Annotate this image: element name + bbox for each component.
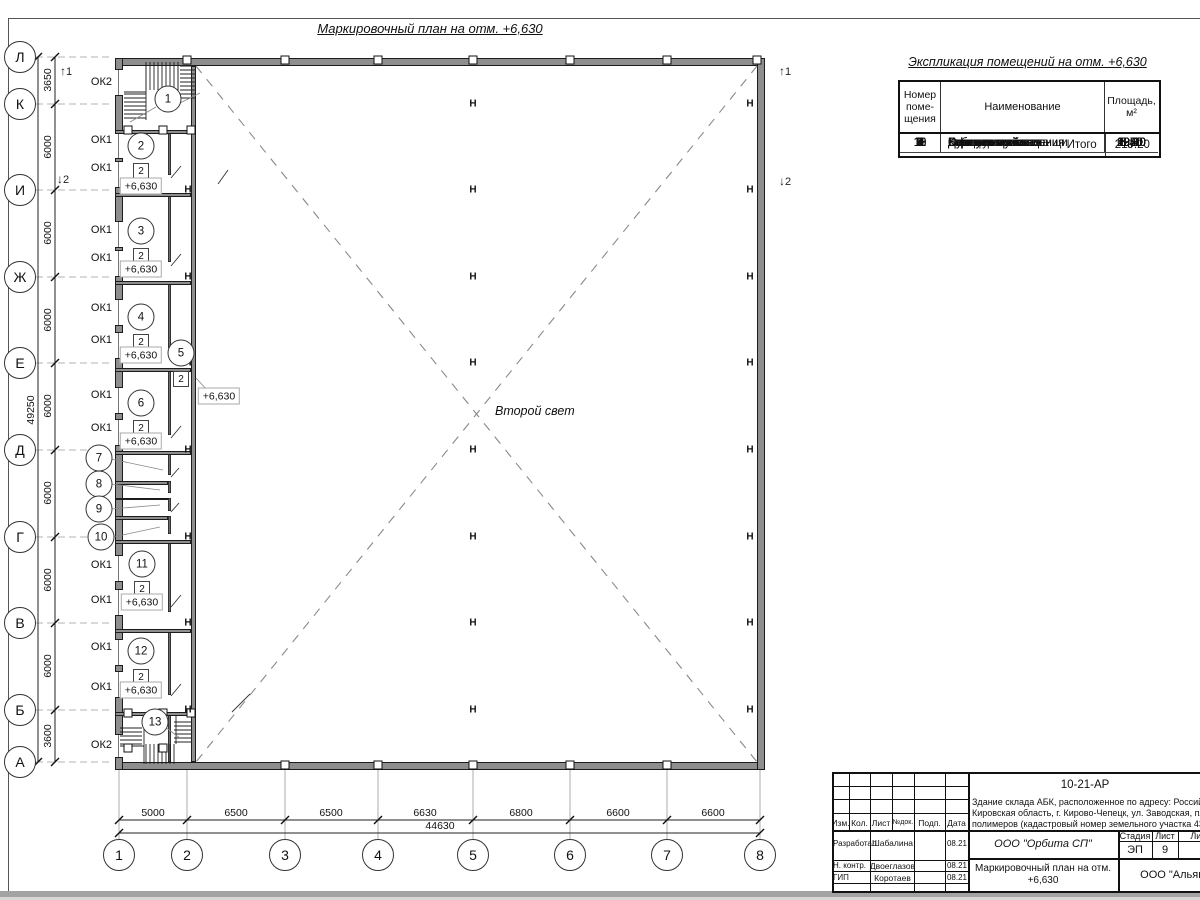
- row-axis-circle: Б: [4, 694, 36, 726]
- sig-date-cell: 08.21: [946, 872, 968, 883]
- dimension-label: 6000: [42, 308, 54, 331]
- rev-col-izm: Изм.: [832, 815, 849, 830]
- doc-title-cell: Маркировочный план на отм. +6,630: [968, 859, 1118, 891]
- rev-col-ndok: №док.: [892, 815, 914, 830]
- room-number-marker: 9: [86, 496, 113, 523]
- project-description: Здание склада АБК, расположенное по адре…: [972, 797, 1200, 830]
- sheets-header: Листов: [1178, 831, 1200, 841]
- wall-column-square: [663, 56, 672, 65]
- titleblock-line: [832, 813, 968, 814]
- column-mark: Н: [184, 705, 191, 716]
- column-mark: Н: [469, 99, 476, 110]
- section-number: 2: [63, 174, 69, 186]
- wall-column-square: [566, 761, 575, 770]
- window-mark-label: ОК1: [91, 681, 112, 693]
- schedule-header-name: Наименование: [941, 82, 1105, 132]
- elevation-label: +6,630: [198, 388, 240, 405]
- wall-column-square: [566, 56, 575, 65]
- total-width-dimension: 44630: [425, 820, 454, 832]
- sig-name-cell: Шабалина: [871, 836, 914, 850]
- window-mark-label: ОК2: [91, 76, 112, 88]
- col-axis-circle: 7: [651, 839, 683, 871]
- stage-value: ЭП: [1118, 842, 1152, 858]
- column-mark: Н: [469, 272, 476, 283]
- window-mark-label: ОК1: [91, 334, 112, 346]
- drawing-sheet: Маркировочный план на отм. +6,630 Экспли…: [0, 0, 1200, 900]
- wall-column-square: [663, 761, 672, 770]
- dimension-label: 6800: [509, 807, 532, 819]
- column-mark: Н: [469, 445, 476, 456]
- room-number-marker: 6: [128, 390, 155, 417]
- sig-role-cell: Н. контр.: [833, 860, 870, 871]
- dimension-label: 6000: [42, 135, 54, 158]
- sig-date-cell: 08.21: [946, 860, 968, 871]
- titleblock: 10-21-АР Здание склада АБК, расположенно…: [832, 772, 1200, 893]
- elevation-label: +6,630: [120, 347, 162, 364]
- section-number: 2: [785, 176, 791, 188]
- column-mark: Н: [746, 618, 753, 629]
- column-mark: Н: [746, 705, 753, 716]
- elevation-label: +6,630: [120, 261, 162, 278]
- col-axis-circle: 1: [103, 839, 135, 871]
- row-axis-circle: В: [4, 607, 36, 639]
- void-diagonal-cross-icon: [196, 66, 757, 762]
- window-mark-label: ОК1: [91, 134, 112, 146]
- col-axis-circle: 4: [362, 839, 394, 871]
- room-number-marker: 7: [86, 445, 113, 472]
- sheet-value: 9: [1152, 842, 1178, 858]
- dimension-label: 5000: [141, 807, 164, 819]
- schedule-header-area: Площадь, м²: [1105, 82, 1158, 132]
- room-name-cell: Лестнична клетка: [941, 134, 1105, 152]
- wall-column-square: [124, 126, 133, 135]
- rev-col-kol: Кол.: [849, 815, 870, 830]
- total-height-dimension: 49250: [25, 395, 37, 424]
- dimension-label: 6500: [224, 807, 247, 819]
- window-mark-label: ОК1: [91, 302, 112, 314]
- window-mark-label: ОК1: [91, 162, 112, 174]
- room-area-cell: 6,40: [1105, 134, 1158, 152]
- titleblock-line: [832, 786, 968, 787]
- wall-column-square: [124, 709, 133, 718]
- window-mark-label: ОК1: [91, 594, 112, 606]
- col-axis-circle: 6: [554, 839, 586, 871]
- row-axis-circle: Л: [4, 41, 36, 73]
- dimension-label: 3600: [42, 724, 54, 747]
- wall-column-square: [183, 56, 192, 65]
- schedule-header-number: Номер поме- щения: [900, 82, 941, 132]
- wall-column-square: [469, 761, 478, 770]
- dimension-label: 6600: [606, 807, 629, 819]
- window-mark-label: ОК1: [91, 422, 112, 434]
- schedule-header: Номер поме- щения Наименование Площадь, …: [900, 82, 1159, 134]
- second-light-label: Второй свет: [495, 404, 575, 418]
- room-number-marker: 2: [128, 133, 155, 160]
- dimension-label: 6630: [413, 807, 436, 819]
- column-mark: Н: [746, 358, 753, 369]
- wall-column-square: [159, 744, 168, 753]
- dimension-label: 6500: [319, 807, 342, 819]
- section-cut-mark: ↑1: [779, 64, 791, 78]
- sheet-header: Лист: [1152, 831, 1178, 841]
- wall-column-square: [469, 56, 478, 65]
- column-mark: Н: [746, 532, 753, 543]
- room-number-marker: 4: [128, 304, 155, 331]
- elevation-label: +6,630: [120, 178, 162, 195]
- dimension-label: 6000: [42, 568, 54, 591]
- dimension-label: 6000: [42, 394, 54, 417]
- window-mark-label: ОК1: [91, 389, 112, 401]
- sig-role-cell: ГИП: [833, 872, 870, 883]
- rev-col-podp: Подп.: [914, 815, 945, 830]
- section-cut-mark: ↑1: [60, 64, 72, 78]
- col-axis-circle: 3: [269, 839, 301, 871]
- titleblock-line: [832, 799, 968, 800]
- wall-column-square: [281, 56, 290, 65]
- sig-name-cell: Двоеглазов: [871, 860, 914, 871]
- row-axis-circle: Г: [4, 521, 36, 553]
- column-mark: Н: [184, 185, 191, 196]
- column-mark: Н: [746, 99, 753, 110]
- room-number-marker: 10: [88, 524, 115, 551]
- room-type-marker: 2: [173, 371, 189, 387]
- row-axis-circle: Е: [4, 347, 36, 379]
- column-mark: Н: [746, 272, 753, 283]
- section-cut-mark: ↓2: [779, 174, 791, 188]
- column-mark: Н: [184, 445, 191, 456]
- wall-column-square: [159, 126, 168, 135]
- titleblock-line: [832, 891, 1200, 893]
- dimension-label: 6000: [42, 481, 54, 504]
- column-mark: Н: [469, 532, 476, 543]
- window-mark-label: ОК1: [91, 252, 112, 264]
- row-axis-circle: А: [4, 746, 36, 778]
- column-mark: Н: [469, 705, 476, 716]
- titleblock-line: [914, 772, 915, 893]
- column-mark: Н: [184, 618, 191, 629]
- org-cell: ООО "Орбита СП": [968, 830, 1118, 858]
- column-mark: Н: [469, 358, 476, 369]
- wall-column-square: [753, 56, 762, 65]
- column-mark: Н: [746, 185, 753, 196]
- room-number-marker: 5: [168, 340, 195, 367]
- dimension-label: 6000: [42, 221, 54, 244]
- row-axis-circle: К: [4, 88, 36, 120]
- window-mark-label: ОК1: [91, 641, 112, 653]
- row-axis-circle: Ж: [4, 261, 36, 293]
- door-swing-lines: [171, 166, 250, 712]
- elevation-label: +6,630: [120, 682, 162, 699]
- project-code-cell: 10-21-АР: [968, 774, 1200, 796]
- elevation-label: +6,630: [121, 594, 163, 611]
- row-axis-circle: И: [4, 174, 36, 206]
- sig-date-cell: 08.21: [946, 836, 968, 850]
- col-axis-circle: 8: [744, 839, 776, 871]
- org2-cell: ООО "Альянс: [1118, 859, 1200, 891]
- sig-role-cell: Разработал: [833, 836, 870, 850]
- stage-header: Стадия: [1118, 831, 1152, 841]
- room-number-cell: 13: [900, 134, 941, 152]
- wall-column-square: [124, 744, 133, 753]
- room-number-marker: 1: [155, 86, 182, 113]
- room-number-marker: 8: [86, 471, 113, 498]
- col-axis-circle: 2: [171, 839, 203, 871]
- elevation-label: +6,630: [120, 433, 162, 450]
- window-mark-label: ОК1: [91, 224, 112, 236]
- section-number: 1: [785, 66, 791, 78]
- room-number-marker: 3: [128, 218, 155, 245]
- column-mark: Н: [184, 272, 191, 283]
- section-number: 1: [66, 66, 72, 78]
- sheets-value: 1: [1178, 842, 1200, 858]
- wall-column-square: [374, 56, 383, 65]
- column-mark: Н: [184, 532, 191, 543]
- wall-column-square: [374, 761, 383, 770]
- wall-column-square: [281, 761, 290, 770]
- section-cut-mark: ↓2: [57, 172, 69, 186]
- row-axis-circle: Д: [4, 434, 36, 466]
- room-number-marker: 12: [128, 638, 155, 665]
- column-mark: Н: [469, 618, 476, 629]
- rev-col-data: Дата: [945, 815, 968, 830]
- room-number-marker: 11: [129, 551, 156, 578]
- schedule-table: Номер поме- щения Наименование Площадь, …: [898, 80, 1161, 158]
- dimension-label: 6600: [701, 807, 724, 819]
- wall-column-square: [187, 126, 196, 135]
- window-mark-label: ОК1: [91, 559, 112, 571]
- column-mark: Н: [469, 185, 476, 196]
- column-mark: Н: [746, 445, 753, 456]
- sig-name-cell: Коротаев: [871, 872, 914, 883]
- dimension-label: 6000: [42, 654, 54, 677]
- dimension-label: 3650: [42, 68, 54, 91]
- titleblock-line: [832, 883, 968, 884]
- window-mark-label: ОК2: [91, 739, 112, 751]
- rev-col-list: Лист: [870, 815, 892, 830]
- col-axis-circle: 5: [457, 839, 489, 871]
- room-number-marker: 13: [142, 709, 169, 736]
- schedule-row: 13 Лестнична клетка 6,40: [900, 134, 1158, 153]
